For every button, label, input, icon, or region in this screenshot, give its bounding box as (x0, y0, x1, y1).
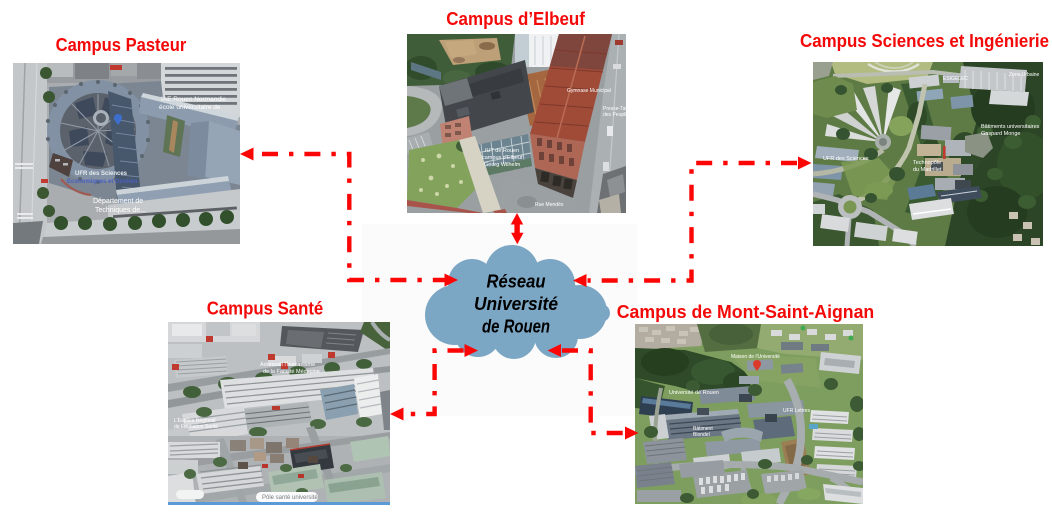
svg-text:UFR des Sciences: UFR des Sciences (75, 171, 128, 177)
svg-text:UFR Lettres: UFR Lettres (783, 408, 810, 414)
svg-text:Rue Mendès: Rue Mendès (535, 202, 564, 208)
svg-text:Campus Pasteur: Campus Pasteur (56, 35, 187, 55)
svg-text:Pôle santé université: Pôle santé université (262, 495, 318, 501)
svg-text:Adressait l'humanisme: Adressait l'humanisme (260, 362, 315, 368)
svg-text:Département de: Département de (93, 198, 143, 205)
svg-text:Campus Sciences et Ingénierie: Campus Sciences et Ingénierie (800, 31, 1049, 51)
svg-text:Economiques et Gestion: Economiques et Gestion (67, 179, 138, 185)
svg-text:UFR des Sciences: UFR des Sciences (823, 156, 869, 162)
svg-text:Gaspard Monge: Gaspard Monge (981, 131, 1020, 137)
svg-text:Techniques de...: Techniques de... (95, 207, 146, 214)
svg-text:Zone Urbaine: Zone Urbaine (1009, 72, 1040, 78)
svg-text:ESIGELEC: ESIGELEC (943, 76, 968, 82)
svg-text:campus d'Elbeuf: campus d'Elbeuf (482, 155, 523, 161)
svg-text:Campus d’Elbeuf: Campus d’Elbeuf (446, 9, 586, 29)
svg-text:Campus Santé: Campus Santé (207, 298, 324, 318)
svg-text:Université: Université (474, 293, 558, 314)
svg-text:Georg Wilhelm: Georg Wilhelm (484, 162, 521, 168)
svg-text:IUT de Rouen: IUT de Rouen (485, 148, 519, 154)
svg-text:des Peupliers: des Peupliers (603, 112, 634, 118)
svg-text:de Formation Santé: de Formation Santé (174, 424, 218, 430)
svg-text:de la Faculté Médecine: de la Faculté Médecine (263, 369, 320, 375)
svg-text:Bâtiments universitaires: Bâtiments universitaires (981, 124, 1040, 130)
svg-text:IAE Rouen Normandie: IAE Rouen Normandie (161, 96, 226, 103)
svg-text:Technopôle: Technopôle (913, 160, 941, 166)
svg-text:Université de Rouen: Université de Rouen (669, 390, 719, 396)
svg-text:Gymnase Municipal: Gymnase Municipal (567, 88, 611, 94)
svg-text:Blondel: Blondel (693, 432, 710, 438)
svg-text:de Rouen: de Rouen (482, 316, 550, 337)
svg-text:Réseau: Réseau (487, 271, 546, 292)
svg-text:Campus de Mont-Saint-Aignan: Campus de Mont-Saint-Aignan (617, 302, 875, 322)
svg-text:Maison de l'Université: Maison de l'Université (731, 354, 780, 360)
svg-text:du Madrillet: du Madrillet (913, 167, 942, 173)
svg-text:école universitaire de: école universitaire de (159, 104, 221, 111)
